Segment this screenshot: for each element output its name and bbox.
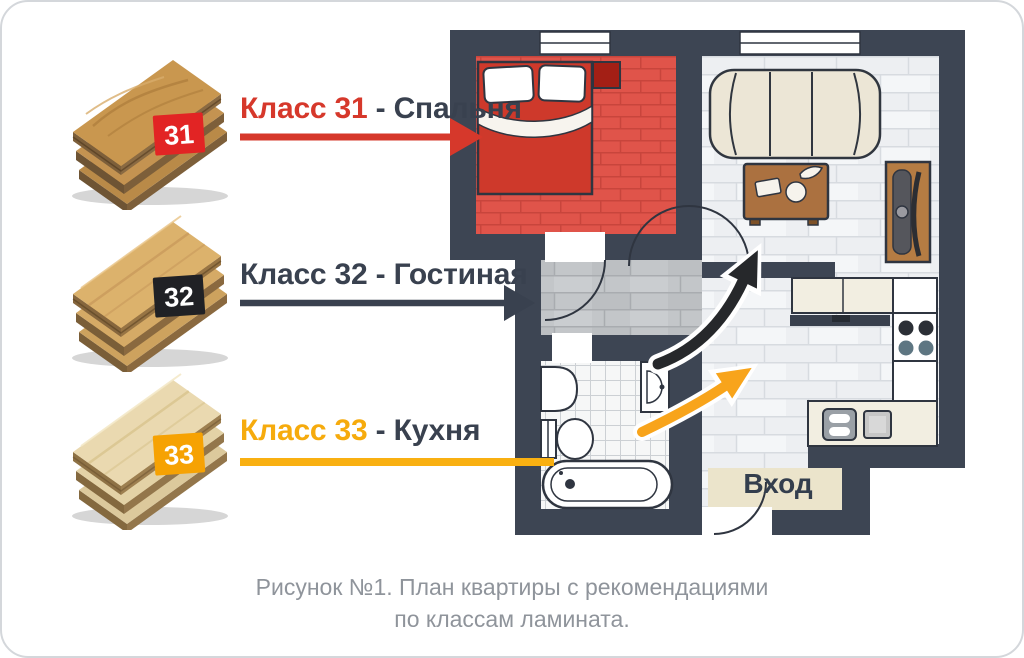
caption-line-2: по классам ламината. [0, 604, 1024, 634]
class-badge-33: 33 [153, 432, 206, 475]
entrance-door-opening [702, 507, 772, 537]
sofa-icon [710, 70, 880, 158]
toilet-icon [541, 419, 593, 459]
window-icon [740, 32, 860, 54]
kitchen-bottom-wall [808, 444, 870, 470]
class-33-label: Класс 33 [240, 414, 368, 447]
bathroom-door-opening [552, 333, 592, 363]
class-badge-32: 32 [153, 274, 206, 317]
legend-item-kitchen: Класс 33 - Кухня [240, 414, 480, 448]
kitchen-sink-icon [808, 401, 937, 446]
legend-item-bedroom: Класс 31 - Спальня [240, 92, 522, 126]
stove-icon [893, 313, 937, 361]
entrance-label: Вход [712, 468, 844, 500]
badge-number: 31 [163, 119, 195, 151]
laminate-sample-31: 31 [58, 40, 233, 210]
room-bedroom-label: - Спальня [368, 92, 522, 125]
bathroom-sink-icon [541, 367, 577, 411]
laminate-sample-32: 32 [58, 202, 233, 372]
bedroom-door-opening [545, 232, 605, 262]
laminate-sample-33: 33 [58, 360, 233, 530]
coffee-table-icon [744, 164, 828, 225]
kitchen-partition-wall [702, 262, 835, 278]
window-icon [540, 32, 610, 54]
kitchen-counter [893, 361, 937, 401]
legend-item-living-room: Класс 32 - Гостиная [240, 258, 528, 292]
caption-line-1: Рисунок №1. План квартиры с рекомендация… [0, 572, 1024, 602]
room-kitchen-label: - Кухня [368, 414, 481, 447]
class-32-label: Класс 32 [240, 258, 368, 291]
bathtub-icon [543, 461, 672, 508]
room-living-label: - Гостиная [368, 258, 528, 291]
hallway-floor [541, 260, 702, 335]
badge-number: 33 [163, 439, 195, 471]
tv-cabinet-icon [886, 162, 930, 262]
badge-number: 32 [163, 281, 195, 313]
class-31-label: Класс 31 [240, 92, 368, 125]
class-badge-31: 31 [153, 112, 206, 155]
bathroom-sink2-icon [641, 362, 669, 412]
